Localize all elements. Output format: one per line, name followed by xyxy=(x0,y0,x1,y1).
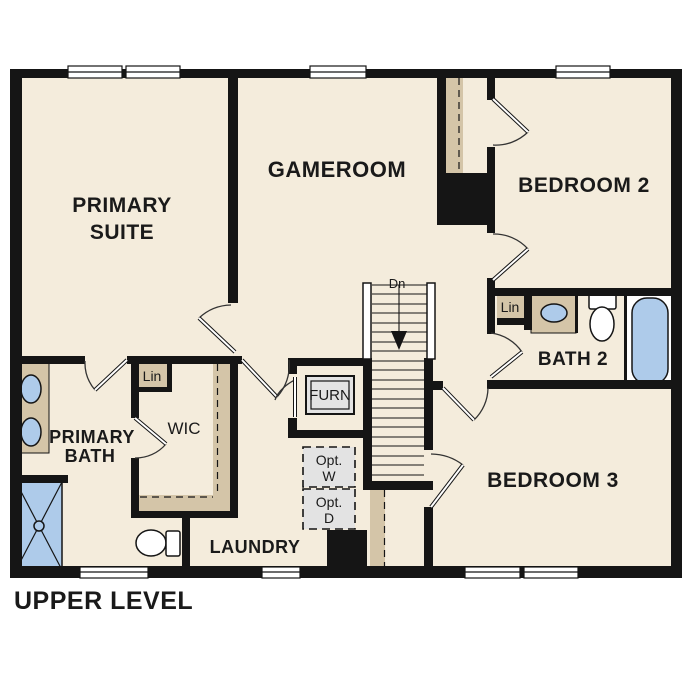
stair-rail-left xyxy=(363,283,371,359)
window xyxy=(556,66,610,78)
window xyxy=(524,567,578,578)
primary-sink-2 xyxy=(21,418,41,446)
washer-label-2: W xyxy=(322,468,336,484)
laundry-corner-block xyxy=(327,530,367,566)
bedroom2-label: BEDROOM 2 xyxy=(518,174,650,197)
bath2-linen-label: Lin xyxy=(501,299,520,315)
bedroom2-closet-shelf xyxy=(446,78,463,173)
primary-toilet-bowl xyxy=(136,530,166,556)
bath2-tub xyxy=(632,298,668,384)
window xyxy=(262,567,300,578)
primary-bath-label-2: BATH xyxy=(65,446,116,466)
primary-sink-1 xyxy=(21,375,41,403)
primary-suite-label-1: PRIMARY xyxy=(72,194,172,217)
chase-block xyxy=(437,173,495,225)
understair-strip xyxy=(370,490,385,566)
window xyxy=(126,66,180,78)
bath2-sink xyxy=(541,304,567,322)
dryer-label-1: Opt. xyxy=(316,494,342,510)
washer-label-1: Opt. xyxy=(316,452,342,468)
laundry-label: LAUNDRY xyxy=(210,537,301,557)
dryer-label-2: D xyxy=(324,510,334,526)
primary-toilet-tank xyxy=(166,531,180,556)
bath2-label: BATH 2 xyxy=(538,349,608,370)
window xyxy=(310,66,366,78)
primary-suite-label-2: SUITE xyxy=(90,221,154,244)
shower-drain xyxy=(34,521,44,531)
gameroom-label: GAMEROOM xyxy=(268,157,406,182)
window xyxy=(68,66,122,78)
primary-linen-label: Lin xyxy=(143,368,162,384)
wic-label: WIC xyxy=(167,419,200,438)
primary-bath-label-1: PRIMARY xyxy=(49,427,135,447)
window xyxy=(465,567,520,578)
furnace-label: FURN xyxy=(309,387,351,404)
page-title: UPPER LEVEL xyxy=(14,587,193,615)
stairs-dn-label: Dn xyxy=(389,276,406,291)
wic-shelf-right xyxy=(213,364,230,495)
floor-plan-page: PRIMARY SUITE GAMEROOM BEDROOM 2 BATH 2 … xyxy=(0,0,687,687)
stair-rail-right xyxy=(427,283,435,359)
bath2-toilet-bowl xyxy=(590,307,614,341)
floor-plan-svg: PRIMARY SUITE GAMEROOM BEDROOM 2 BATH 2 … xyxy=(0,0,687,687)
bedroom3-label: BEDROOM 3 xyxy=(487,469,619,492)
window xyxy=(80,567,148,578)
